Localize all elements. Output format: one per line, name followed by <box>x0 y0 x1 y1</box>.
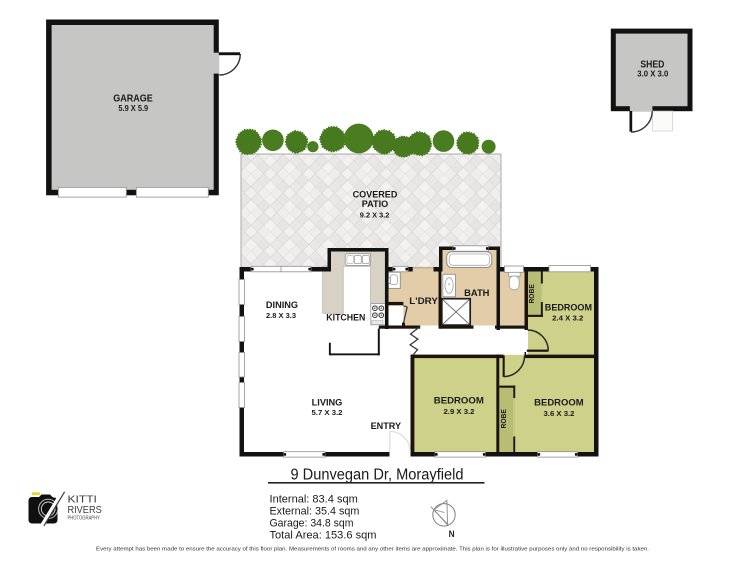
svg-text:PHOTOGRAPHY: PHOTOGRAPHY <box>68 515 101 521</box>
svg-text:BEDROOM: BEDROOM <box>545 302 592 312</box>
svg-text:3.0 X 3.0: 3.0 X 3.0 <box>637 70 669 79</box>
svg-text:9 Dunvegan Dr, Morayfield: 9 Dunvegan Dr, Morayfield <box>291 467 464 484</box>
svg-text:External: 35.4 sqm: External: 35.4 sqm <box>270 506 360 518</box>
svg-text:N: N <box>449 529 455 539</box>
svg-text:BEDROOM: BEDROOM <box>534 397 583 407</box>
svg-text:2.9 X 3.2: 2.9 X 3.2 <box>444 407 475 416</box>
svg-text:Garage: 34.8 sqm: Garage: 34.8 sqm <box>270 518 354 530</box>
svg-text:ROBE: ROBE <box>529 284 536 304</box>
svg-text:5.9 X 5.9: 5.9 X 5.9 <box>118 104 148 113</box>
svg-text:Total Area: 153.6 sqm: Total Area: 153.6 sqm <box>270 530 377 542</box>
svg-text:9.2 X 3.2: 9.2 X 3.2 <box>360 211 390 220</box>
svg-text:5.7 X 3.2: 5.7 X 3.2 <box>312 408 343 417</box>
svg-text:BATH: BATH <box>464 288 489 298</box>
svg-text:GARAGE: GARAGE <box>113 94 153 105</box>
svg-text:LIVING: LIVING <box>312 397 343 407</box>
svg-text:Every attempt has been made to: Every attempt has been made to ensure th… <box>96 547 649 553</box>
svg-text:3.6 X 3.2: 3.6 X 3.2 <box>544 409 575 418</box>
svg-text:Internal: 83.4 sqm: Internal: 83.4 sqm <box>270 494 358 506</box>
svg-text:2.4 X 3.2: 2.4 X 3.2 <box>552 314 583 323</box>
svg-text:ROBE: ROBE <box>501 409 508 429</box>
svg-text:PATIO: PATIO <box>362 199 388 209</box>
svg-text:DINING: DINING <box>266 300 298 310</box>
svg-text:2.8 X 3.3: 2.8 X 3.3 <box>266 311 296 320</box>
svg-text:BEDROOM: BEDROOM <box>434 395 484 405</box>
svg-text:ENTRY: ENTRY <box>371 421 401 431</box>
svg-text:L'DRY: L'DRY <box>409 296 438 306</box>
svg-text:RIVERS: RIVERS <box>68 504 102 516</box>
svg-text:KITCHEN: KITCHEN <box>326 313 365 323</box>
